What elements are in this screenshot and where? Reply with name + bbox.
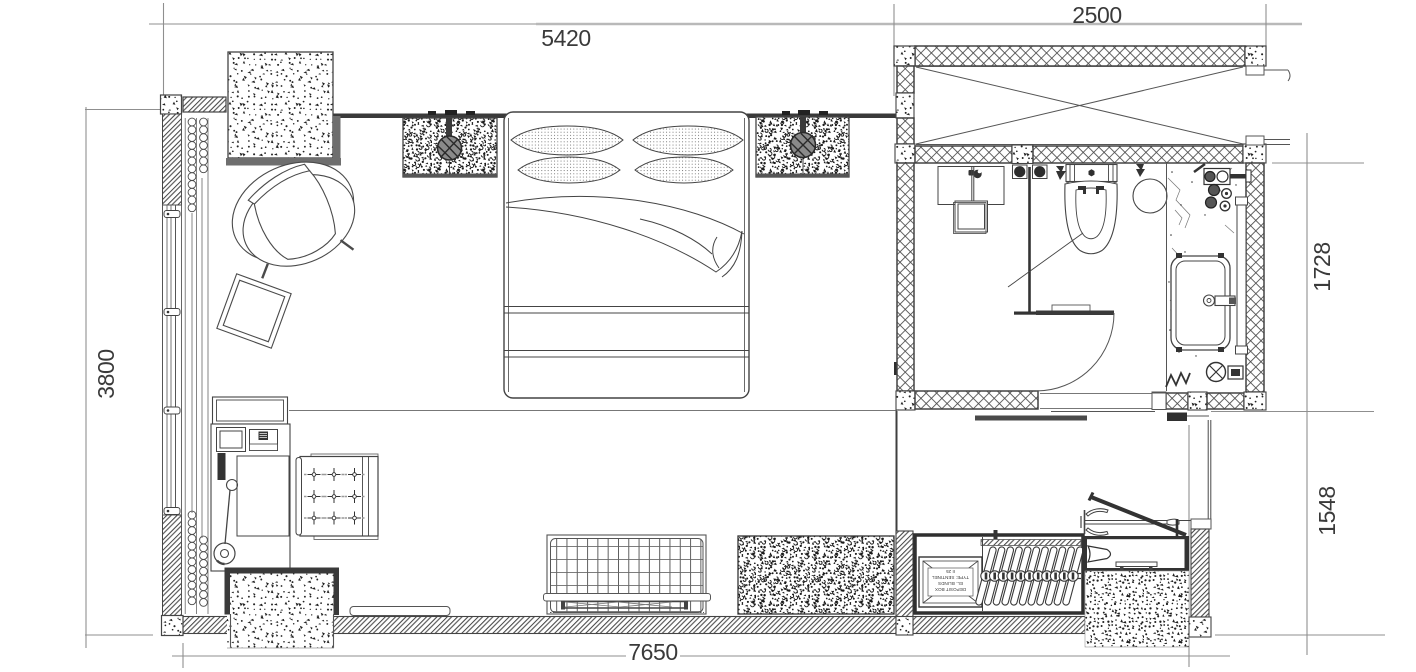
svg-text:5420: 5420 (541, 25, 591, 51)
svg-text:DEPOSIT BOX: DEPOSIT BOX (935, 587, 966, 592)
svg-text:1548: 1548 (1314, 486, 1340, 536)
svg-text:II 25: II 25 (946, 569, 955, 574)
svg-text:TYPE: SENTINEL: TYPE: SENTINEL (932, 575, 969, 580)
svg-text:EL. BLINDS: EL. BLINDS (938, 581, 963, 586)
svg-text:3800: 3800 (93, 349, 119, 399)
svg-text:2500: 2500 (1072, 2, 1122, 28)
svg-text:1728: 1728 (1309, 242, 1335, 292)
svg-text:7650: 7650 (628, 639, 678, 665)
